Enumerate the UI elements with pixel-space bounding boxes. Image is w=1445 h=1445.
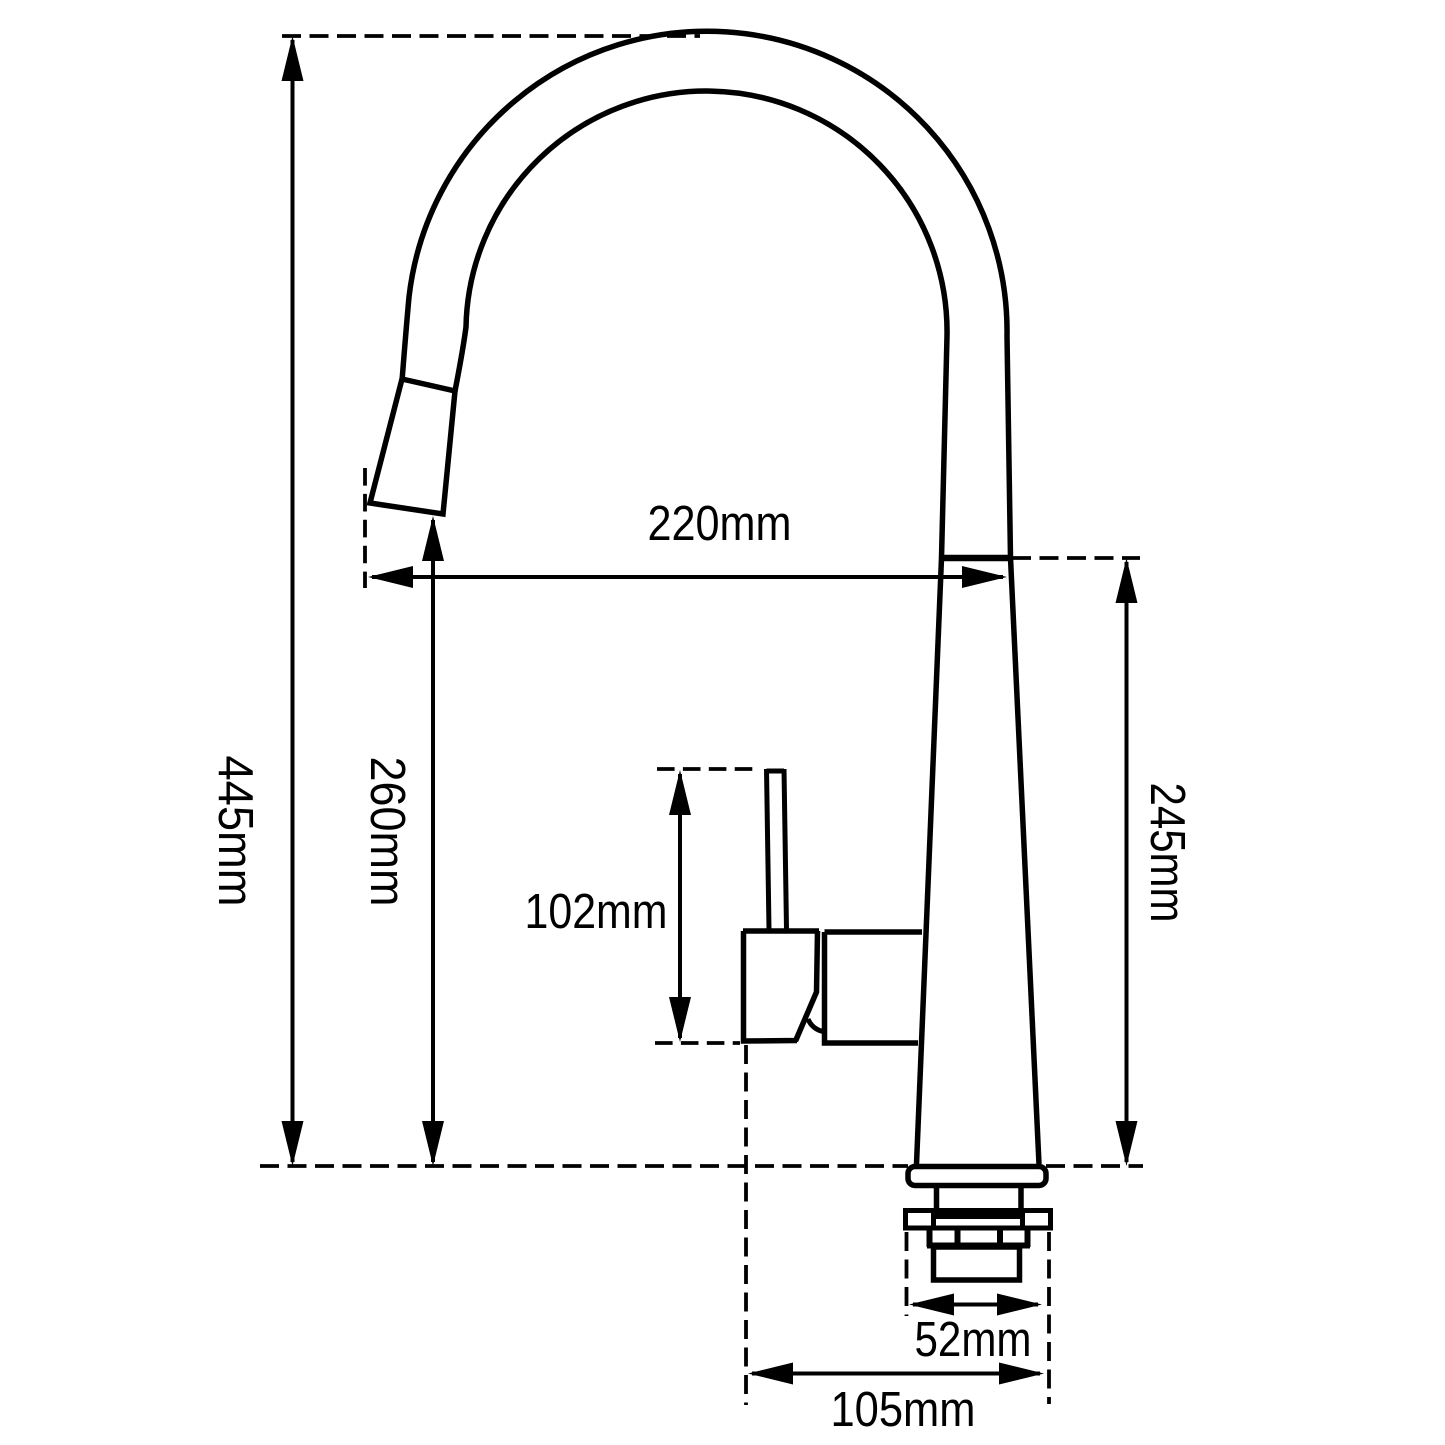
svg-text:260mm: 260mm: [360, 757, 414, 907]
svg-text:102mm: 102mm: [525, 885, 668, 939]
svg-text:52mm: 52mm: [915, 1313, 1032, 1367]
svg-text:245mm: 245mm: [1140, 783, 1194, 923]
svg-text:220mm: 220mm: [648, 497, 792, 551]
svg-text:105mm: 105mm: [831, 1383, 976, 1437]
svg-text:445mm: 445mm: [208, 756, 262, 907]
